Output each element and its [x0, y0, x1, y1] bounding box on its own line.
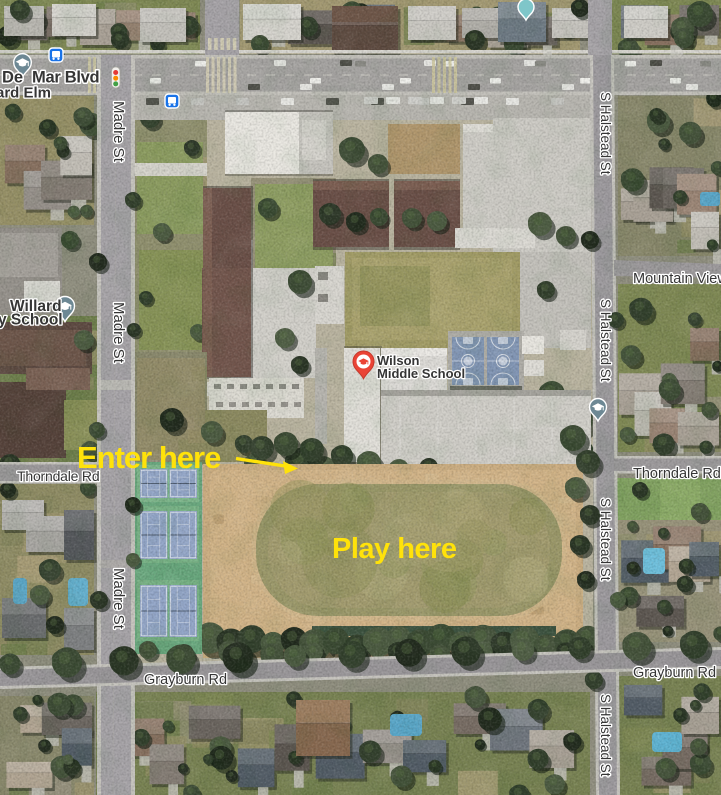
svg-text:ard Elm: ard Elm [0, 85, 51, 102]
svg-text:S Halstead St: S Halstead St [598, 694, 613, 777]
svg-text:y School: y School [0, 312, 63, 329]
svg-text:Middle School: Middle School [377, 366, 465, 381]
svg-text:Thorndale Rd: Thorndale Rd [633, 466, 721, 482]
svg-text:S Halstead St: S Halstead St [598, 498, 613, 581]
svg-text:S Halstead St: S Halstead St [598, 92, 613, 175]
svg-text:Enter here: Enter here [77, 440, 221, 475]
svg-text:S Halstead St: S Halstead St [598, 299, 613, 382]
svg-text:Grayburn Rd: Grayburn Rd [144, 672, 227, 688]
svg-text:Madre St: Madre St [110, 101, 127, 163]
svg-text:Madre St: Madre St [110, 302, 127, 364]
svg-text:Madre St: Madre St [110, 568, 127, 630]
svg-text:Grayburn Rd: Grayburn Rd [633, 665, 716, 681]
svg-text:Mountain View: Mountain View [633, 271, 721, 287]
svg-text:Play here: Play here [332, 533, 457, 565]
